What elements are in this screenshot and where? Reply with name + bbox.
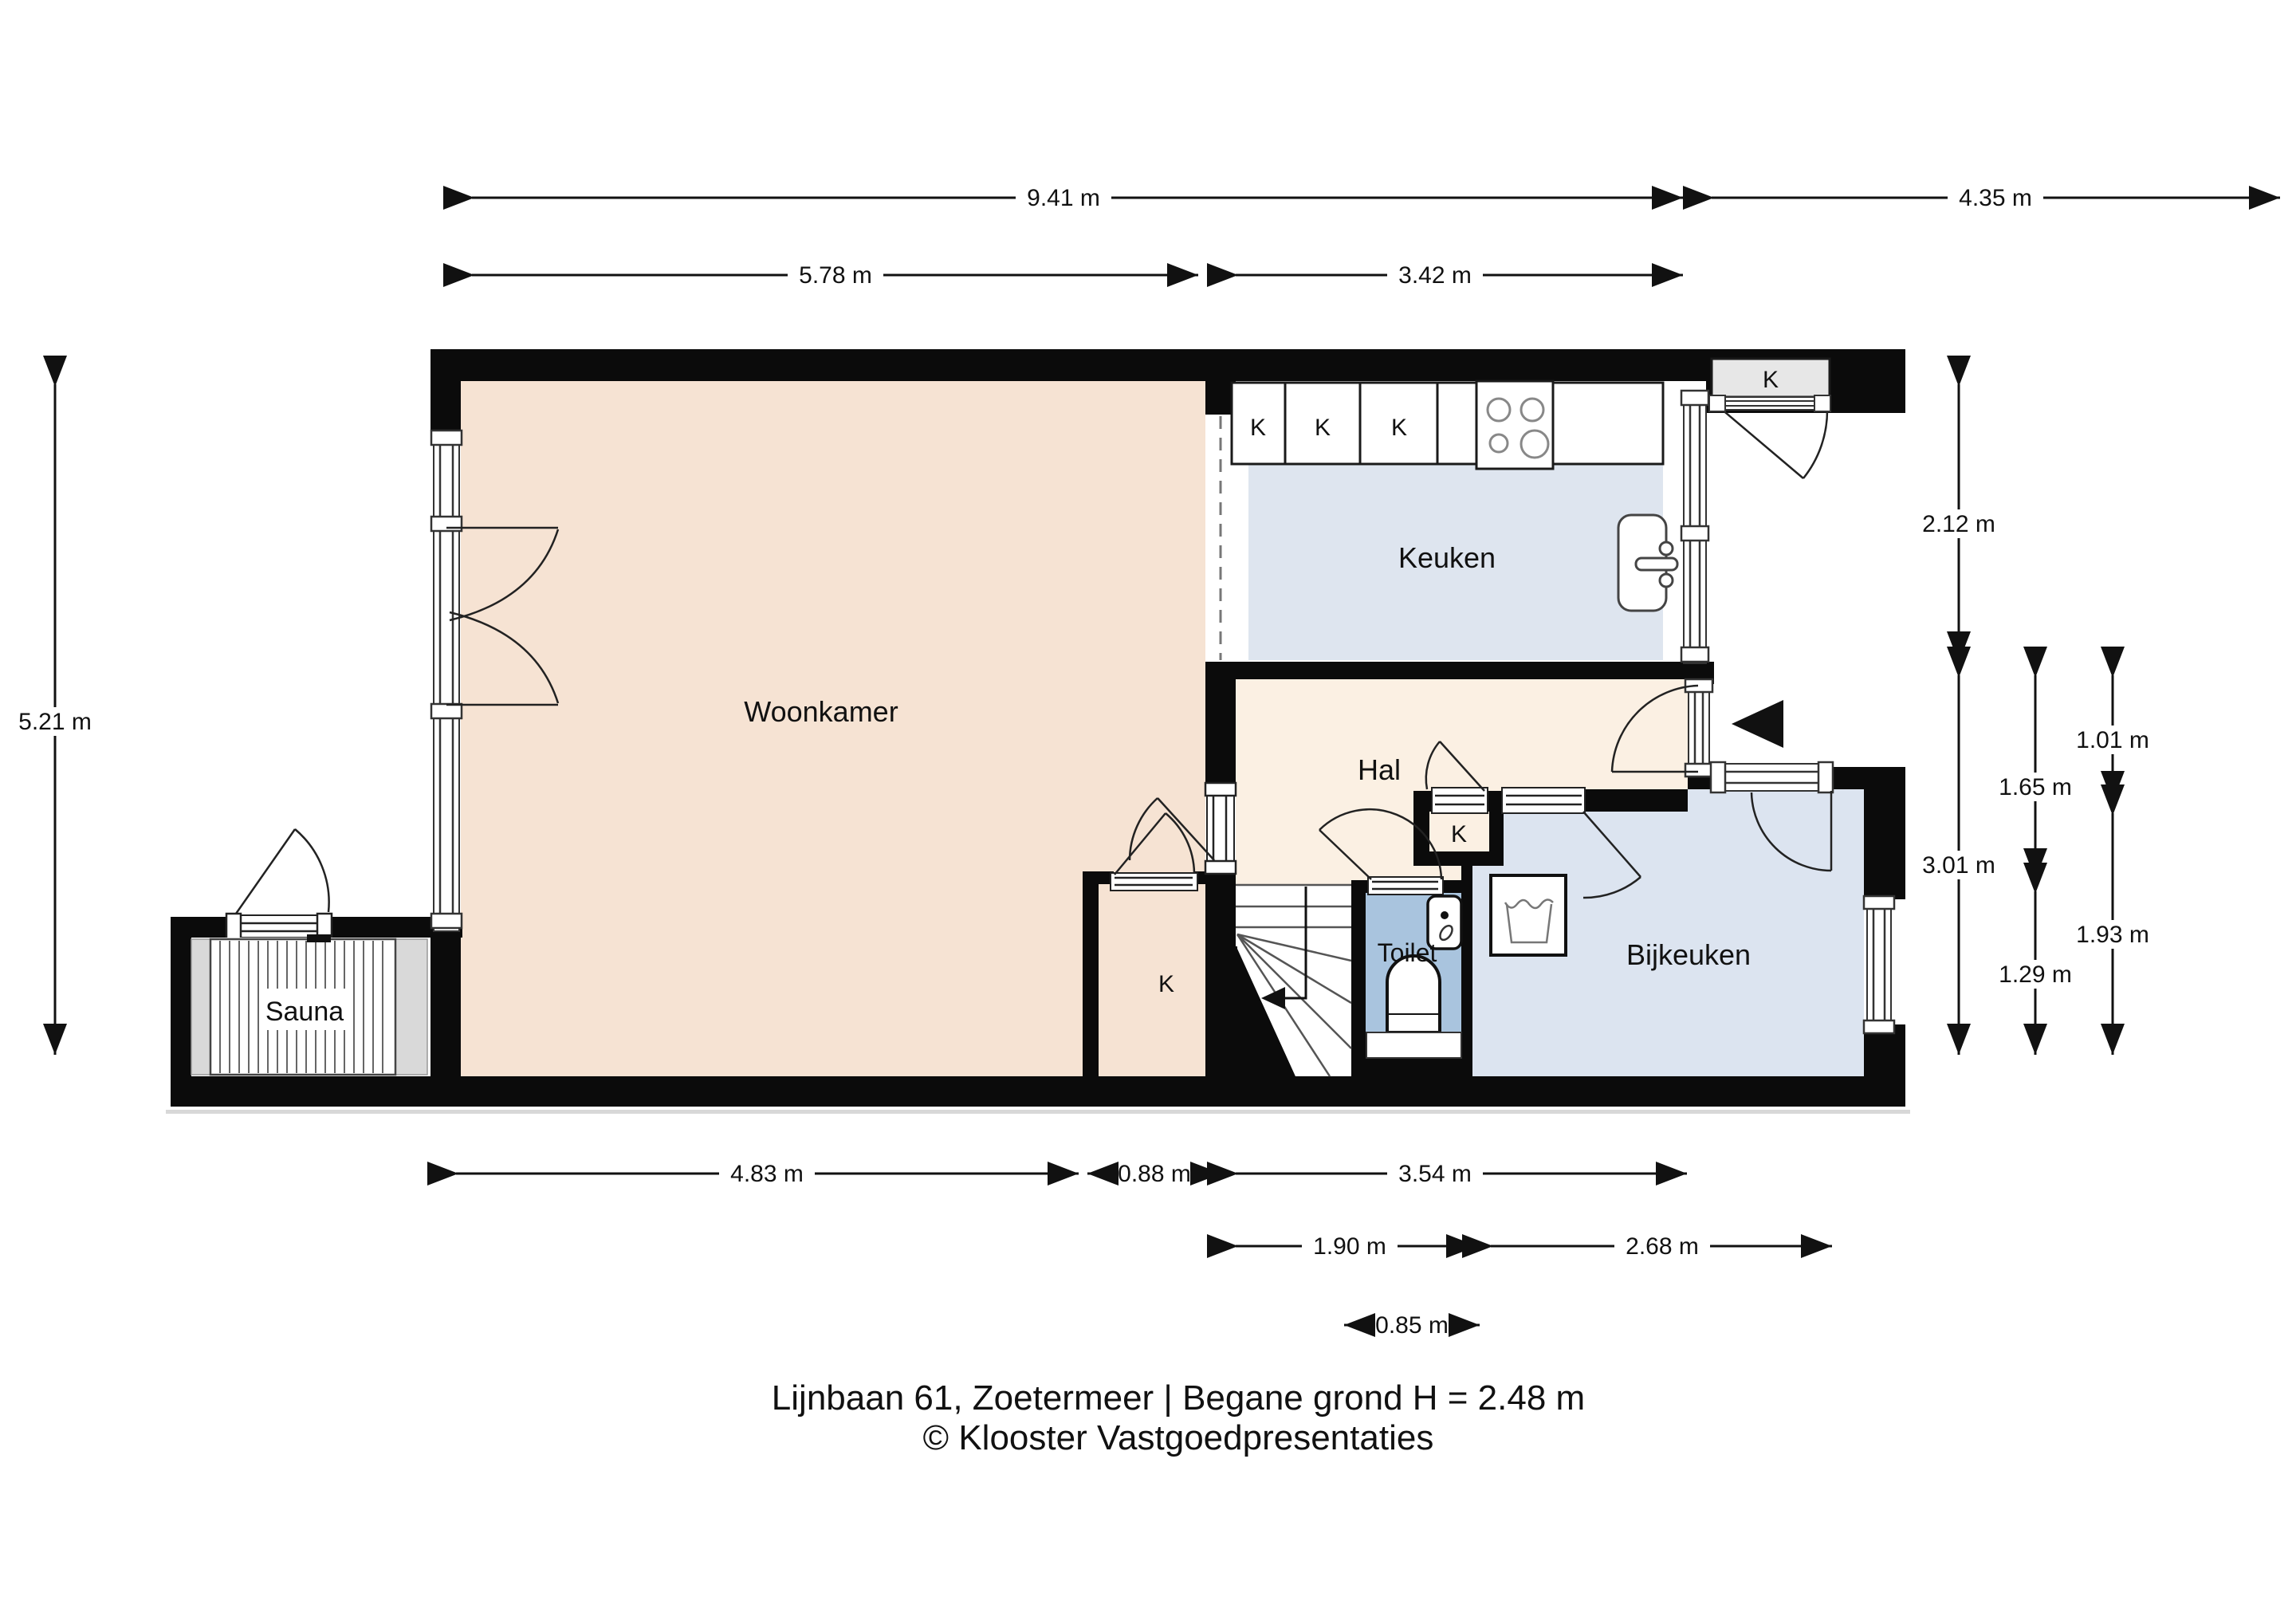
window-kitchen-right: [1681, 391, 1708, 663]
label-bijkeuken: Bijkeuken: [1626, 938, 1751, 971]
window-frontdoor-sidelight: [1685, 679, 1712, 777]
dim-right-hall: 1.65 m: [1999, 774, 2072, 800]
counter-blank-1: [1437, 383, 1476, 464]
door-sauna: [226, 829, 332, 939]
dim-right-porch: 2.12 m: [1922, 511, 1995, 537]
wall-living-hal-a: [1205, 662, 1236, 788]
sauna: Sauna: [191, 934, 431, 1076]
window-passage: [1711, 762, 1833, 792]
label-hal: Hal: [1358, 753, 1401, 786]
wall-toilet-bottom: [1351, 1058, 1472, 1078]
label-toilet: Toilet: [1378, 938, 1437, 967]
kitchen-counter: [1232, 381, 1663, 469]
dim-left-height: 5.21 m: [18, 709, 92, 735]
cabinet-1-label: K: [1250, 415, 1266, 441]
dim-bottom-closet: 0.88 m: [1118, 1161, 1191, 1187]
washing-machine: [1491, 875, 1566, 955]
wall-right-lower: [1864, 1024, 1905, 1107]
wall-toilet-top-a: [1351, 880, 1368, 893]
wall-minicloset-right: [1489, 812, 1504, 864]
wall-hal-top: [1205, 662, 1714, 679]
wall-living-hal-b: [1205, 867, 1236, 947]
wall-left-bottom: [431, 917, 461, 1076]
wall-top: [431, 349, 1706, 381]
kitchen-sink: [1618, 515, 1677, 611]
footer-title: Lijnbaan 61, Zoetermeer | Begane grond H…: [772, 1378, 1585, 1418]
dim-bottom-stairs: 1.90 m: [1313, 1233, 1386, 1260]
footer-copyright: © Klooster Vastgoedpresentaties: [923, 1418, 1434, 1457]
floorplan-page: K K K K: [0, 0, 2296, 1624]
door-kast-porch: [1720, 408, 1827, 478]
shadow-line: [166, 1110, 1910, 1114]
window-left-wall: [431, 431, 462, 931]
footer: Lijnbaan 61, Zoetermeer | Begane grond H…: [772, 1378, 1585, 1457]
sauna-bench-left: [191, 939, 210, 1075]
kast-topright-label: K: [1763, 367, 1779, 393]
dim-right-small: 1.01 m: [2076, 727, 2149, 753]
wall-right-upper: [1864, 785, 1905, 899]
dim-right-utility: 1.93 m: [2076, 922, 2149, 948]
dim-bottom-toilet: 0.85 m: [1375, 1312, 1449, 1339]
sauna-bench-right: [395, 939, 427, 1075]
label-woonkamer: Woonkamer: [744, 695, 898, 728]
toilet-bowl: [1387, 956, 1440, 1032]
wall-bijkeuken-left: [1461, 866, 1472, 1076]
label-keuken: Keuken: [1398, 541, 1496, 574]
wall-bijkeuken-top: [1583, 789, 1688, 812]
label-closet-mini: K: [1451, 821, 1467, 847]
dim-right-toilet: 1.29 m: [1999, 961, 2072, 988]
wall-bottom: [171, 1076, 1905, 1107]
window-bijkeuken-right: [1864, 896, 1894, 1033]
wall-closet-left: [1083, 871, 1099, 1076]
dim-bottom-right: 3.54 m: [1398, 1161, 1472, 1187]
cabinet-3-label: K: [1391, 415, 1407, 441]
wall-closet-top-a: [1083, 871, 1114, 884]
dim-top-living-text: 5.78 m: [799, 262, 872, 289]
entrance-arrow-icon: [1732, 700, 1783, 748]
basin-faucet: [1441, 911, 1449, 919]
label-closet-understairs: K: [1158, 971, 1174, 997]
sauna-label: Sauna: [265, 997, 344, 1027]
sauna-heater: [307, 934, 331, 942]
toilet-sill: [1366, 1032, 1461, 1058]
wall-left-top: [431, 349, 461, 440]
wall-toilet-left: [1351, 885, 1366, 1076]
dim-right-lower: 3.01 m: [1922, 852, 1995, 879]
kast-topright: K: [1709, 359, 1830, 411]
counter-blank-2: [1553, 383, 1663, 464]
wall-hal-b-a: [1413, 791, 1433, 812]
cabinet-2-label: K: [1315, 415, 1331, 441]
dim-bottom-utility: 2.68 m: [1626, 1233, 1699, 1260]
dim-bottom-living: 4.83 m: [730, 1161, 804, 1187]
dim-top-right: 4.35 m: [1959, 185, 2032, 211]
floorplan-canvas: K K K K: [0, 0, 2296, 1624]
dim-top-total: 9.41 m: [1027, 185, 1100, 211]
dim-top-kitchen: 3.42 m: [1398, 262, 1472, 289]
wall-sauna-top-a: [171, 917, 231, 938]
